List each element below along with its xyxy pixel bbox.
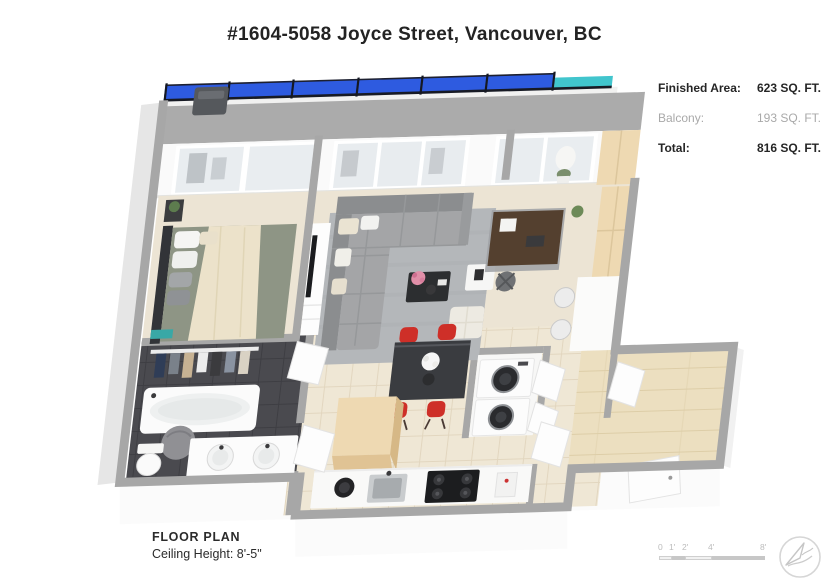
finished-area-value: 623 SQ. FT. xyxy=(757,81,821,95)
living-room-sliding-door xyxy=(329,137,471,191)
scale-tick: 4' xyxy=(708,542,714,552)
pillow xyxy=(199,231,218,245)
balcony-furniture xyxy=(192,86,229,115)
pillow xyxy=(168,272,193,288)
ceiling-height-label: Ceiling Height: 8'-5" xyxy=(152,547,262,561)
scale-tick: 0 xyxy=(658,542,663,552)
balcony-furniture-top xyxy=(198,91,225,100)
pillow xyxy=(171,251,198,269)
vanity xyxy=(186,435,299,478)
plan-footer: FLOOR PLAN Ceiling Height: 8'-5" xyxy=(152,530,262,561)
cooktop xyxy=(424,470,480,504)
page-title: #1604-5058 Joyce Street, Vancouver, BC xyxy=(0,24,829,46)
total-area-label: Total: xyxy=(658,141,690,155)
total-area-row: Total: 816 SQ. FT. xyxy=(658,141,821,155)
desk-dark xyxy=(487,210,563,266)
pillow xyxy=(338,218,360,235)
area-summary: Finished Area: 623 SQ. FT. Balcony: 193 … xyxy=(658,81,821,171)
total-area-value: 816 SQ. FT. xyxy=(757,141,821,155)
brand-logo xyxy=(777,534,823,580)
pillow xyxy=(174,231,201,249)
laptop xyxy=(526,235,545,247)
teal-decor xyxy=(150,329,173,339)
balcony-area-label: Balcony: xyxy=(658,111,704,125)
scale-tick: 1' xyxy=(669,542,675,552)
floor-plan-label: FLOOR PLAN xyxy=(152,530,262,544)
pillow xyxy=(331,278,348,294)
balcony-area-row: Balcony: 193 SQ. FT. xyxy=(658,111,821,125)
pillow xyxy=(334,248,352,266)
finished-area-row: Finished Area: 623 SQ. FT. xyxy=(658,81,821,95)
coffee-machine xyxy=(495,472,518,497)
scale-tick: 2' xyxy=(682,542,688,552)
pillow xyxy=(166,290,191,306)
balcony-area-value: 193 SQ. FT. xyxy=(757,111,821,125)
bedroom-window xyxy=(171,142,319,196)
photo-frame xyxy=(474,269,484,280)
floor-plan-page: { "page": { "title": "#1604-5058 Joyce S… xyxy=(0,0,829,586)
finished-area-label: Finished Area: xyxy=(658,81,741,95)
printer xyxy=(499,218,516,231)
scale-tick: 8' xyxy=(760,542,766,552)
kitchen-island xyxy=(330,396,405,472)
scale-bar: 0 1' 2' 4' 8' xyxy=(658,542,774,566)
toilet-tank xyxy=(137,443,164,454)
floor-entry xyxy=(568,346,734,469)
pillow xyxy=(360,215,380,230)
brand-logo-icon xyxy=(777,534,823,580)
